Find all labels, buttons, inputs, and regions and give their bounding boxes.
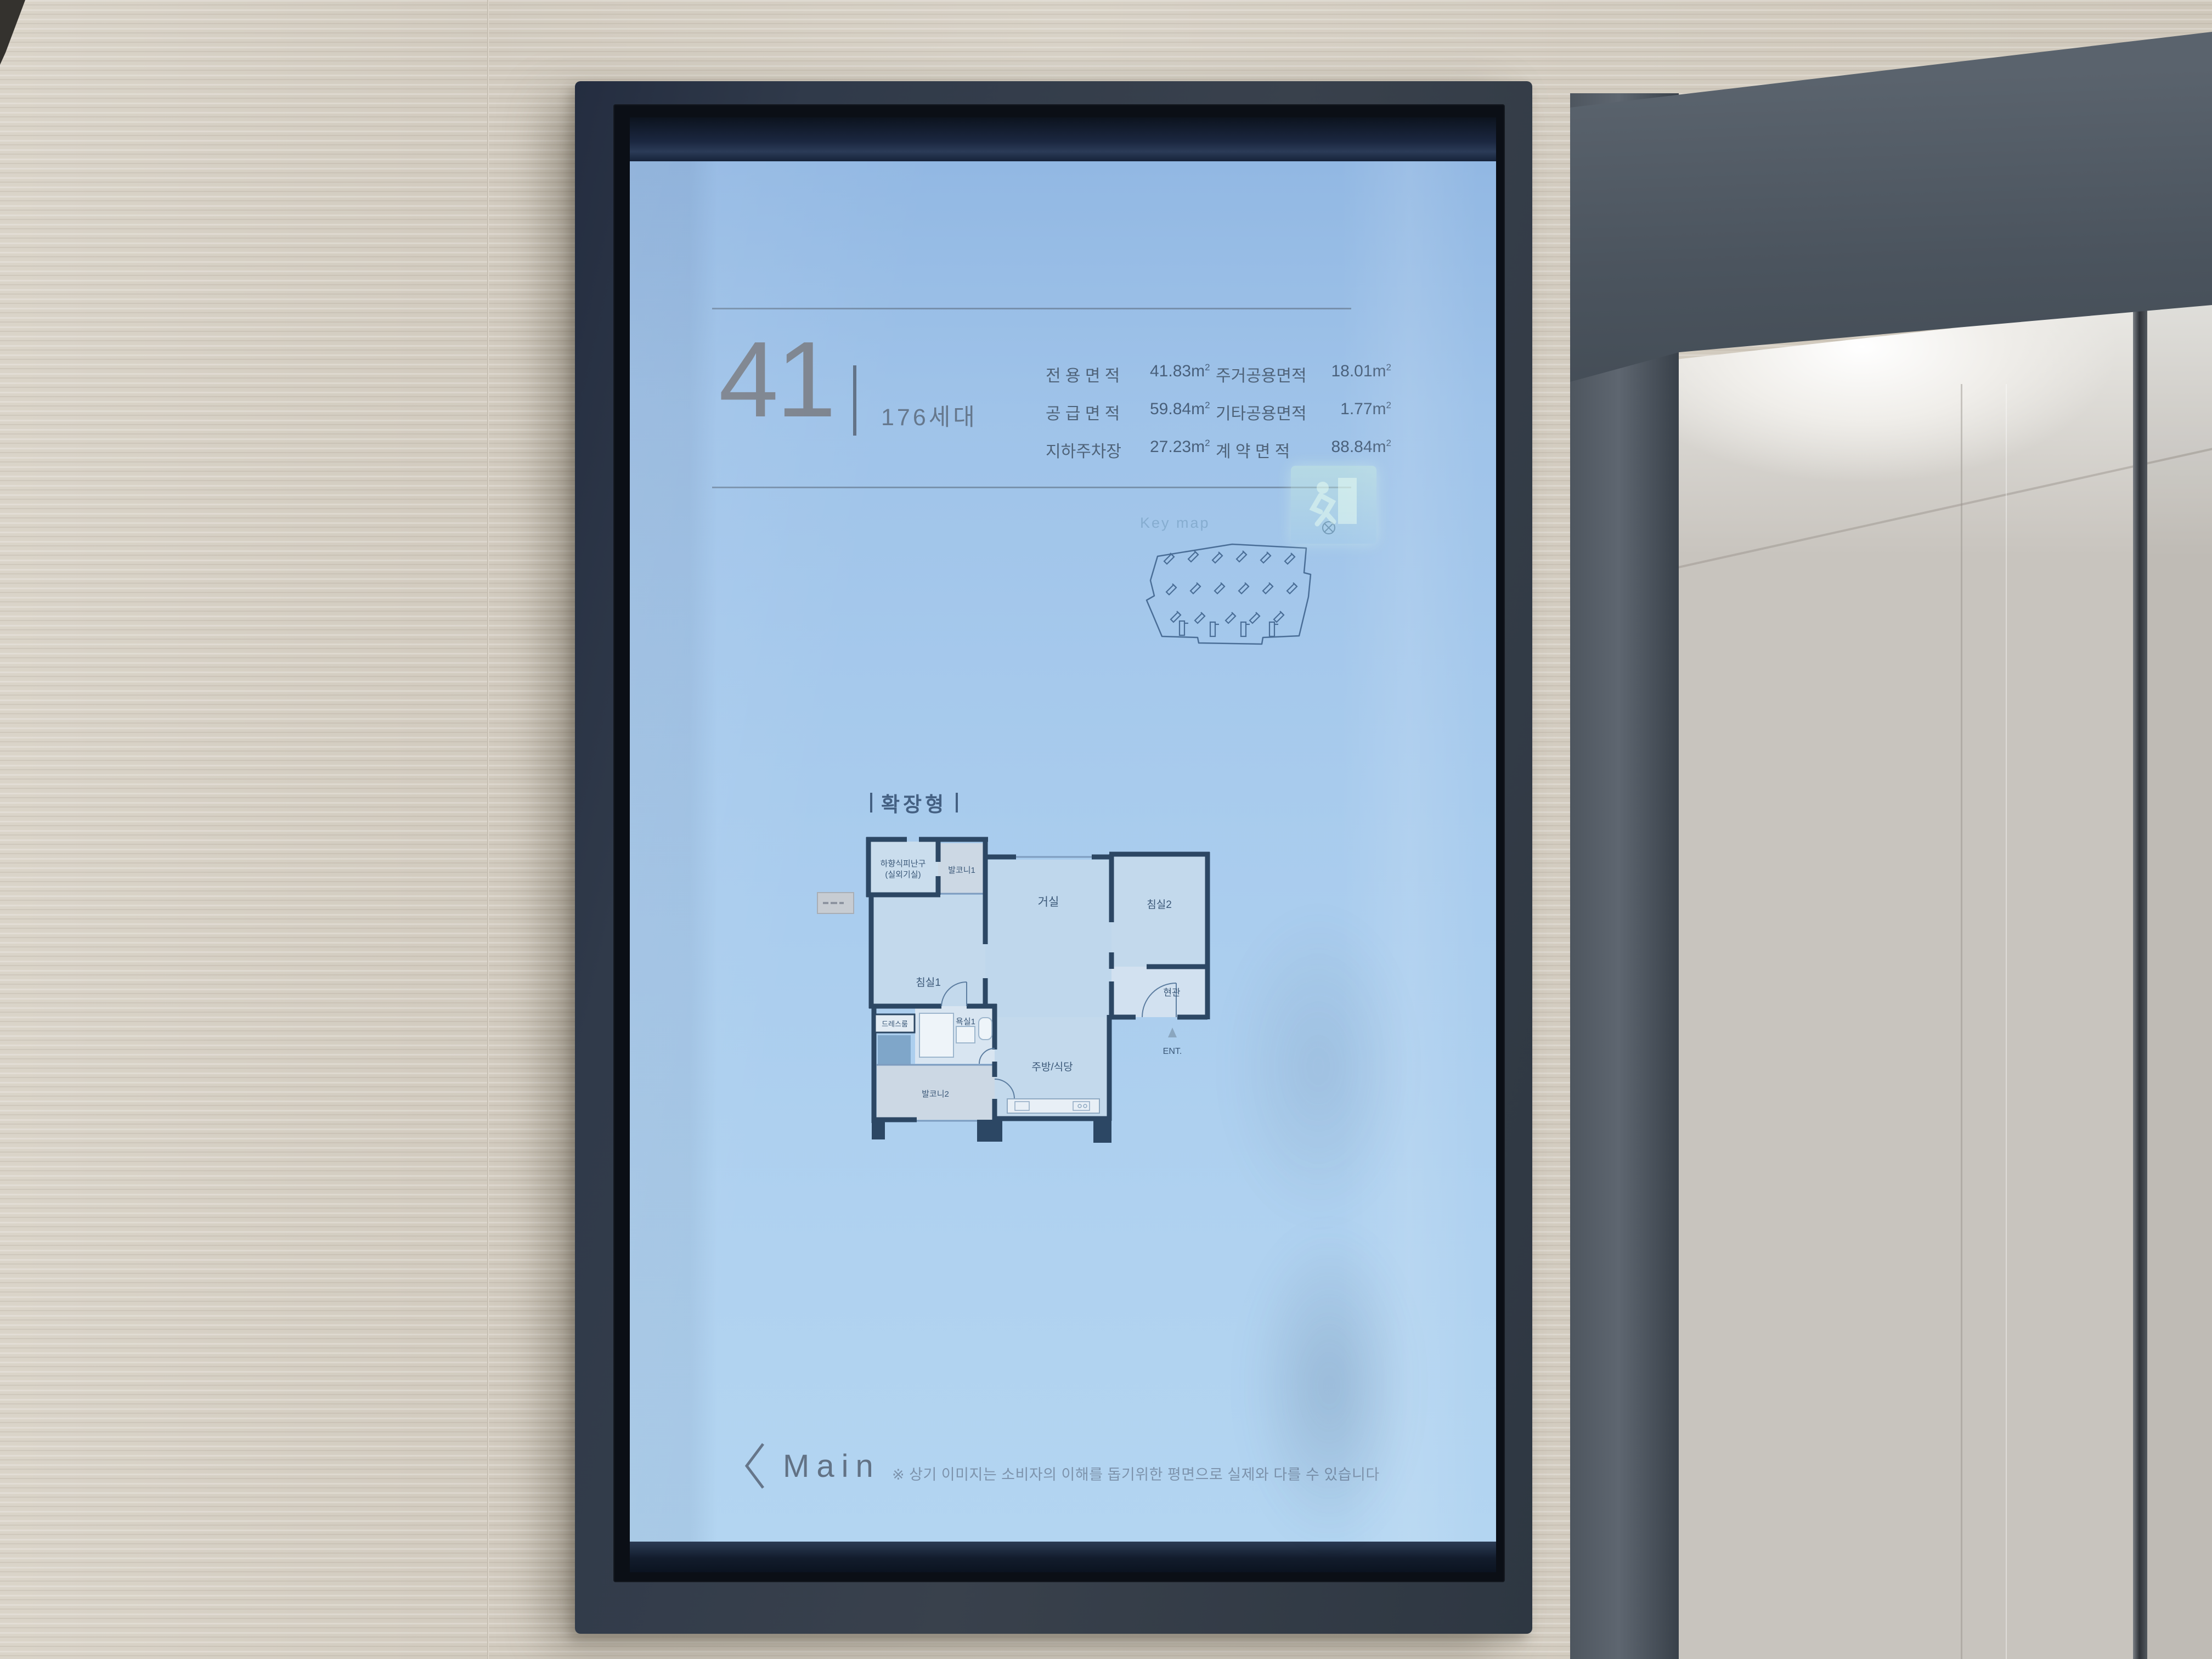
- running-man-icon: [1304, 473, 1364, 534]
- label-bedroom2: 침실2: [1147, 899, 1172, 911]
- area-value: 88.84m2: [1330, 438, 1391, 462]
- floorplan: 하향식피난구 (실외기실) 발코니1 침실1 거실 침실2 현관 드레스룸 욕실…: [811, 822, 1244, 1152]
- mirror-panel: [2147, 285, 2212, 1659]
- label-entrance: 현관: [1163, 988, 1180, 998]
- label-bar: [870, 793, 872, 812]
- area-label: 계 약 면 적: [1216, 438, 1323, 462]
- plan-type-text: 확장형: [881, 788, 947, 817]
- label-bath1: 욕실1: [956, 1017, 975, 1026]
- unit-type-number: 41: [719, 326, 834, 433]
- room-bedroom1: [871, 895, 985, 1006]
- mirror-edge: [2133, 285, 2147, 1659]
- label-bedroom1: 침실1: [916, 977, 941, 989]
- area-label: 주거공용면적: [1216, 362, 1323, 386]
- wall-stubs: [872, 1120, 1111, 1143]
- glass-top-band: [630, 117, 1496, 161]
- kitchen-counter: [1007, 1099, 1099, 1113]
- wall-crease: [2006, 384, 2007, 1659]
- area-value: 59.84m2: [1150, 400, 1209, 424]
- unit-households: 176세대: [881, 398, 978, 432]
- kiosk-glass: 41 176세대 전 용 면 적 41.83m2 주거공용면적 18.01m2 …: [630, 117, 1496, 1572]
- main-button-label: Main: [783, 1448, 881, 1485]
- label-ent: ENT.: [1163, 1047, 1182, 1056]
- wall-panel-seam: [487, 0, 489, 1659]
- wall-crease: [1961, 384, 1962, 1659]
- unit-divider-bar: [853, 365, 856, 436]
- label-dress: 드레스룸: [882, 1020, 908, 1028]
- side-tag: [817, 893, 854, 913]
- kiosk-frame: 41 176세대 전 용 면 적 41.83m2 주거공용면적 18.01m2 …: [575, 81, 1532, 1634]
- main-button[interactable]: Main: [742, 1440, 881, 1492]
- photographer-reflection: [1211, 1198, 1447, 1572]
- label-bar: [956, 793, 958, 812]
- area-label: 공 급 면 적: [1046, 400, 1143, 424]
- kiosk-bezel: 41 176세대 전 용 면 적 41.83m2 주거공용면적 18.01m2 …: [613, 104, 1505, 1582]
- label-living: 거실: [1038, 896, 1059, 909]
- area-value: 18.01m2: [1330, 362, 1391, 386]
- room-shower: [878, 1035, 911, 1065]
- area-label: 기타공용면적: [1216, 400, 1323, 424]
- divider-line-top: [712, 308, 1351, 309]
- area-value: 41.83m2: [1150, 362, 1209, 386]
- area-value: 1.77m2: [1330, 400, 1391, 424]
- plan-type-label: 확장형: [870, 788, 958, 817]
- chevron-left-icon: [742, 1440, 766, 1492]
- room-living: [985, 860, 1111, 1019]
- keymap-title: Key map: [1140, 515, 1210, 531]
- label-evac: 하향식피난구: [881, 859, 926, 868]
- area-label: 전 용 면 적: [1046, 362, 1143, 386]
- area-table: 전 용 면 적 41.83m2 주거공용면적 18.01m2 공 급 면 적 5…: [1046, 362, 1391, 462]
- label-kitchen: 주방/식당: [1031, 1061, 1073, 1073]
- building-footprints: [1164, 551, 1297, 636]
- label-balcony1: 발코니1: [948, 866, 975, 875]
- entrance-arrow: [1168, 1028, 1177, 1037]
- divider-line-bottom: [712, 487, 1351, 488]
- area-value: 27.23m2: [1150, 438, 1209, 462]
- label-evac2: (실외기실): [885, 870, 921, 879]
- exit-sign-reflection: [1291, 466, 1376, 544]
- area-label: 지하주차장: [1046, 438, 1143, 462]
- touchscreen[interactable]: 41 176세대 전 용 면 적 41.83m2 주거공용면적 18.01m2 …: [630, 161, 1496, 1542]
- label-balcony2: 발코니2: [922, 1090, 949, 1099]
